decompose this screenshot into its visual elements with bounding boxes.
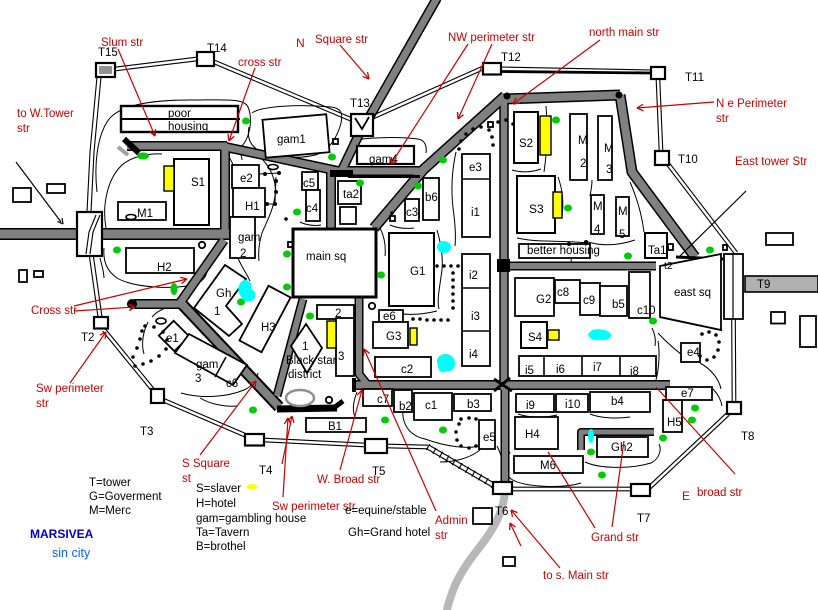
svg-text:3: 3 — [606, 164, 612, 176]
svg-text:B=brothel: B=brothel — [196, 541, 246, 553]
svg-text:to W.Tower: to W.Tower — [17, 108, 74, 120]
svg-text:T10: T10 — [678, 154, 698, 166]
svg-text:N e Perimeter: N e Perimeter — [716, 98, 787, 110]
svg-text:T13: T13 — [350, 98, 370, 110]
svg-text:Sw perimeter str: Sw perimeter str — [272, 501, 356, 513]
svg-text:Black star: Black star — [286, 355, 337, 367]
svg-text:H5: H5 — [667, 417, 682, 429]
svg-text:b3: b3 — [467, 399, 480, 411]
svg-text:H3: H3 — [261, 322, 276, 334]
svg-text:gam: gam — [238, 232, 260, 244]
svg-text:G3: G3 — [386, 331, 401, 343]
svg-text:S4: S4 — [528, 332, 543, 344]
svg-text:better housing: better housing — [527, 245, 600, 257]
svg-text:e6: e6 — [383, 311, 396, 323]
svg-text:H4: H4 — [525, 429, 540, 441]
svg-text:Cross str: Cross str — [31, 305, 77, 317]
svg-text:5: 5 — [619, 229, 625, 241]
svg-text:i4: i4 — [469, 349, 479, 361]
svg-text:gam1: gam1 — [277, 134, 306, 146]
svg-text:Ta=Tavern: Ta=Tavern — [196, 527, 249, 539]
svg-text:b5: b5 — [612, 299, 625, 311]
svg-text:ta2: ta2 — [343, 189, 359, 201]
svg-text:1: 1 — [214, 306, 220, 318]
svg-text:G2: G2 — [536, 294, 551, 306]
svg-text:T7: T7 — [637, 513, 650, 525]
svg-text:MARSIVEA: MARSIVEA — [30, 527, 94, 541]
svg-text:c6: c6 — [226, 378, 238, 390]
svg-text:b2: b2 — [399, 401, 412, 413]
svg-text:i3: i3 — [471, 311, 480, 323]
svg-text:H=hotel: H=hotel — [196, 498, 236, 510]
svg-text:e3: e3 — [469, 162, 482, 174]
svg-text:cross str: cross str — [238, 57, 282, 69]
svg-text:S1: S1 — [191, 177, 205, 189]
svg-text:2: 2 — [335, 308, 341, 320]
svg-text:M=Merc: M=Merc — [89, 505, 131, 517]
svg-text:c10: c10 — [637, 305, 656, 317]
svg-text:sin city: sin city — [52, 546, 91, 560]
svg-text:M1: M1 — [137, 208, 153, 220]
svg-text:4: 4 — [594, 224, 601, 236]
svg-text:H2: H2 — [157, 262, 172, 274]
svg-text:M: M — [604, 143, 614, 155]
svg-text:NW perimeter str: NW perimeter str — [448, 32, 535, 44]
svg-text:b4: b4 — [611, 396, 624, 408]
svg-text:north main str: north main str — [589, 27, 659, 39]
svg-text:Ta1: Ta1 — [648, 245, 667, 257]
svg-text:i2: i2 — [469, 270, 478, 282]
svg-text:T4: T4 — [259, 465, 273, 477]
svg-text:str: str — [716, 113, 729, 125]
svg-text:T12: T12 — [501, 52, 521, 64]
svg-text:T2: T2 — [81, 332, 94, 344]
svg-text:e2: e2 — [240, 173, 253, 185]
svg-text:2: 2 — [240, 248, 246, 260]
svg-text:T8: T8 — [741, 431, 754, 443]
svg-text:E: E — [682, 489, 690, 503]
svg-text:t2: t2 — [664, 260, 673, 272]
svg-text:district: district — [288, 369, 322, 381]
svg-text:B1: B1 — [328, 421, 342, 433]
svg-text:3: 3 — [338, 351, 344, 363]
svg-text:c2: c2 — [401, 364, 413, 376]
svg-text:main sq: main sq — [306, 251, 346, 263]
svg-text:gam=gambling house: gam=gambling house — [196, 513, 306, 525]
svg-text:S Square: S Square — [182, 458, 230, 470]
svg-text:c7: c7 — [377, 394, 389, 406]
svg-text:T3: T3 — [140, 426, 153, 438]
svg-text:S3: S3 — [529, 202, 544, 216]
svg-text:e7: e7 — [681, 388, 694, 400]
svg-text:Square str: Square str — [315, 34, 368, 46]
svg-text:2: 2 — [580, 158, 586, 170]
svg-text:N: N — [296, 36, 305, 50]
svg-text:i6: i6 — [556, 364, 565, 376]
svg-text:Slum str: Slum str — [101, 37, 143, 49]
svg-text:H1: H1 — [245, 201, 260, 213]
svg-text:Gh=Grand hotel: Gh=Grand hotel — [348, 527, 430, 539]
svg-text:W. Broad str: W. Broad str — [317, 474, 380, 486]
svg-text:3: 3 — [195, 373, 201, 385]
svg-text:i8: i8 — [630, 366, 639, 378]
svg-text:c4: c4 — [306, 203, 319, 215]
svg-text:i5: i5 — [525, 365, 534, 377]
svg-text:to s. Main str: to s. Main str — [543, 570, 609, 582]
svg-text:S2: S2 — [519, 138, 533, 150]
svg-text:c9: c9 — [583, 295, 595, 307]
svg-text:T6: T6 — [495, 506, 508, 518]
svg-text:st: st — [182, 473, 192, 485]
svg-text:housing: housing — [168, 121, 208, 133]
svg-text:T11: T11 — [685, 72, 704, 84]
svg-text:T14: T14 — [207, 43, 227, 55]
svg-text:Grand str: Grand str — [591, 532, 639, 544]
svg-text:i10: i10 — [565, 399, 580, 411]
svg-text:e5: e5 — [483, 432, 496, 444]
svg-text:East tower Str: East tower Str — [735, 156, 807, 168]
svg-text:S=slaver: S=slaver — [196, 483, 241, 495]
svg-text:G1: G1 — [410, 266, 425, 278]
svg-text:i1: i1 — [471, 207, 480, 219]
svg-text:gam: gam — [196, 359, 218, 371]
svg-text:east sq: east sq — [674, 287, 711, 299]
svg-text:e=equine/stable: e=equine/stable — [345, 505, 427, 517]
svg-text:T9: T9 — [757, 279, 770, 291]
svg-text:broad str: broad str — [697, 487, 743, 499]
svg-text:c8: c8 — [557, 287, 569, 299]
svg-text:b6: b6 — [425, 192, 438, 204]
svg-text:G=Goverment: G=Goverment — [89, 491, 162, 503]
svg-text:1: 1 — [302, 341, 308, 353]
svg-text:M: M — [578, 135, 588, 147]
svg-text:str: str — [17, 123, 30, 135]
svg-text:poor: poor — [168, 108, 191, 120]
svg-text:M: M — [618, 206, 628, 218]
svg-text:T=tower: T=tower — [89, 477, 131, 489]
svg-text:M: M — [593, 201, 603, 213]
svg-text:str: str — [36, 398, 49, 410]
svg-text:Admin: Admin — [435, 515, 468, 527]
svg-text:str: str — [435, 530, 448, 542]
svg-text:i7: i7 — [593, 362, 602, 374]
svg-text:c5: c5 — [303, 178, 315, 190]
svg-text:Sw perimeter: Sw perimeter — [36, 383, 104, 395]
svg-text:i9: i9 — [526, 400, 535, 412]
svg-text:e4: e4 — [687, 347, 700, 359]
svg-text:Gh: Gh — [216, 288, 231, 300]
svg-text:c3: c3 — [406, 207, 418, 219]
svg-text:c1: c1 — [425, 400, 437, 412]
